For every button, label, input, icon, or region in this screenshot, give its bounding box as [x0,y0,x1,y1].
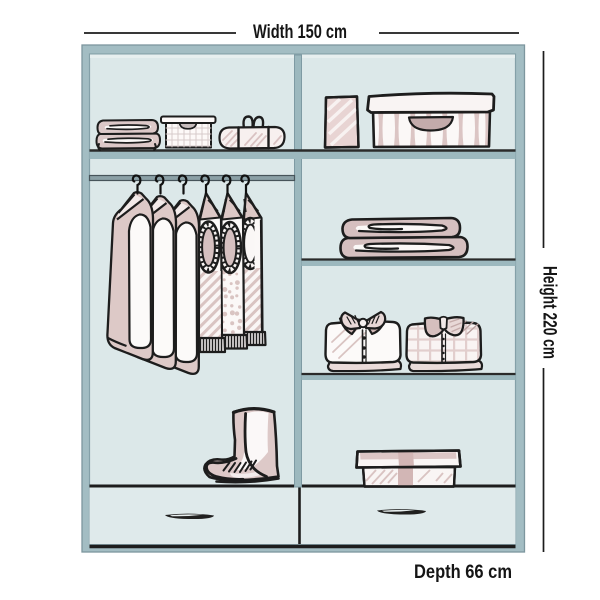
svg-text:Height 220 cm: Height 220 cm [539,266,560,359]
svg-text:Depth 66 cm: Depth 66 cm [414,561,512,583]
svg-text:Width 150 cm: Width 150 cm [253,22,347,43]
